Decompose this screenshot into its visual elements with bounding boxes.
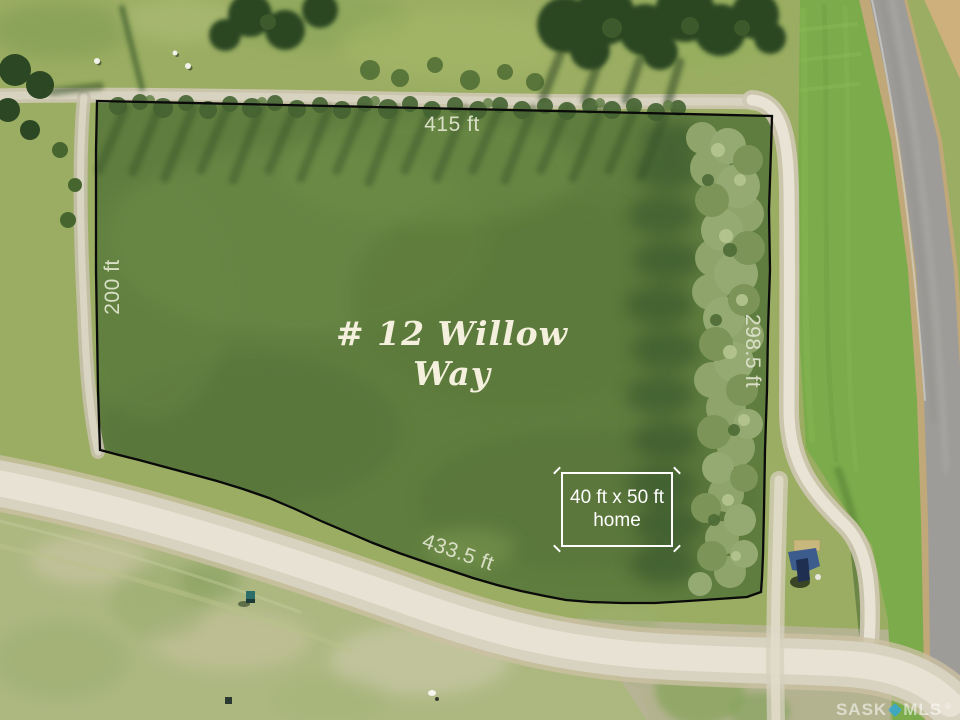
mls-watermark: SASK MLS ®	[836, 701, 952, 718]
mls-diamond-icon	[888, 702, 902, 716]
registered-symbol: ®	[945, 703, 952, 711]
dimension-label-top: 415 ft	[397, 113, 507, 137]
home-footprint-box: 40 ft x 50 ft home	[561, 472, 673, 547]
home-box-line1: 40 ft x 50 ft	[570, 487, 664, 510]
dimension-label-left: 200 ft	[101, 232, 125, 342]
watermark-mls: MLS	[903, 701, 942, 718]
watermark-sask: SASK	[836, 701, 887, 718]
dimension-label-right: 298.5 ft	[740, 296, 764, 406]
home-box-line2: home	[593, 510, 641, 533]
lot-title: # 12 Willow Way	[312, 314, 592, 393]
aerial-lot-photo: 415 ft 200 ft 298.5 ft 433.5 ft # 12 Wil…	[0, 0, 960, 720]
